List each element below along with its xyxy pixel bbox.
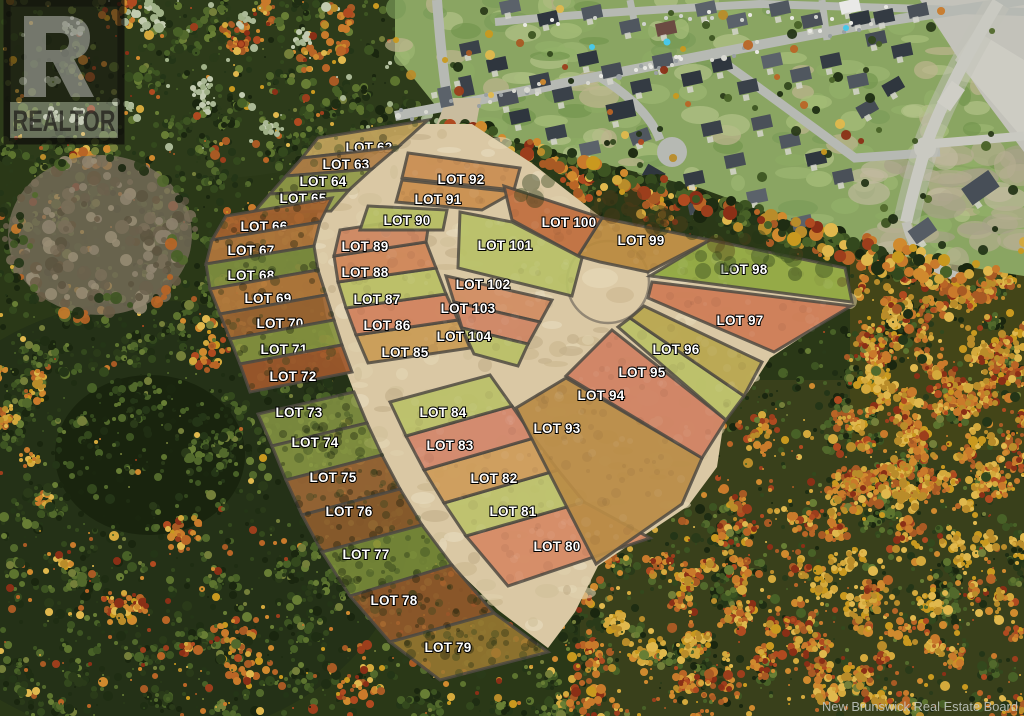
svg-text:LOT 100: LOT 100 [542, 215, 597, 230]
svg-text:LOT 95: LOT 95 [619, 365, 666, 380]
svg-text:LOT 64: LOT 64 [300, 174, 347, 189]
svg-text:LOT 76: LOT 76 [326, 504, 373, 519]
svg-text:LOT 90: LOT 90 [384, 213, 431, 228]
svg-text:LOT 94: LOT 94 [578, 388, 625, 403]
svg-text:LOT 83: LOT 83 [427, 438, 474, 453]
svg-text:LOT 75: LOT 75 [310, 470, 357, 485]
svg-text:LOT 74: LOT 74 [292, 435, 339, 450]
svg-text:LOT 89: LOT 89 [342, 239, 389, 254]
svg-text:LOT 87: LOT 87 [354, 292, 401, 307]
svg-text:LOT 101: LOT 101 [478, 238, 533, 253]
svg-text:LOT 99: LOT 99 [618, 233, 665, 248]
svg-text:LOT 78: LOT 78 [371, 593, 418, 608]
svg-text:LOT 104: LOT 104 [437, 329, 492, 344]
svg-text:LOT 84: LOT 84 [420, 405, 467, 420]
svg-text:LOT 102: LOT 102 [456, 277, 511, 292]
svg-text:LOT 96: LOT 96 [653, 342, 700, 357]
svg-text:LOT 82: LOT 82 [471, 471, 518, 486]
svg-text:LOT 77: LOT 77 [343, 547, 390, 562]
svg-text:LOT 81: LOT 81 [490, 504, 537, 519]
svg-text:LOT 86: LOT 86 [364, 318, 411, 333]
svg-text:LOT 80: LOT 80 [534, 539, 581, 554]
svg-text:LOT 93: LOT 93 [534, 421, 581, 436]
svg-text:REALTOR: REALTOR [13, 105, 116, 138]
svg-text:LOT 73: LOT 73 [276, 405, 323, 420]
svg-text:LOT 103: LOT 103 [441, 301, 496, 316]
svg-text:LOT 91: LOT 91 [415, 192, 462, 207]
svg-text:LOT 88: LOT 88 [342, 265, 389, 280]
svg-text:LOT 79: LOT 79 [425, 640, 472, 655]
svg-text:New Brunswick Real Estate Boar: New Brunswick Real Estate Board [822, 699, 1018, 714]
svg-text:LOT 85: LOT 85 [382, 345, 429, 360]
svg-text:LOT 92: LOT 92 [438, 172, 485, 187]
svg-text:LOT 97: LOT 97 [717, 313, 764, 328]
svg-text:LOT 72: LOT 72 [270, 369, 317, 384]
